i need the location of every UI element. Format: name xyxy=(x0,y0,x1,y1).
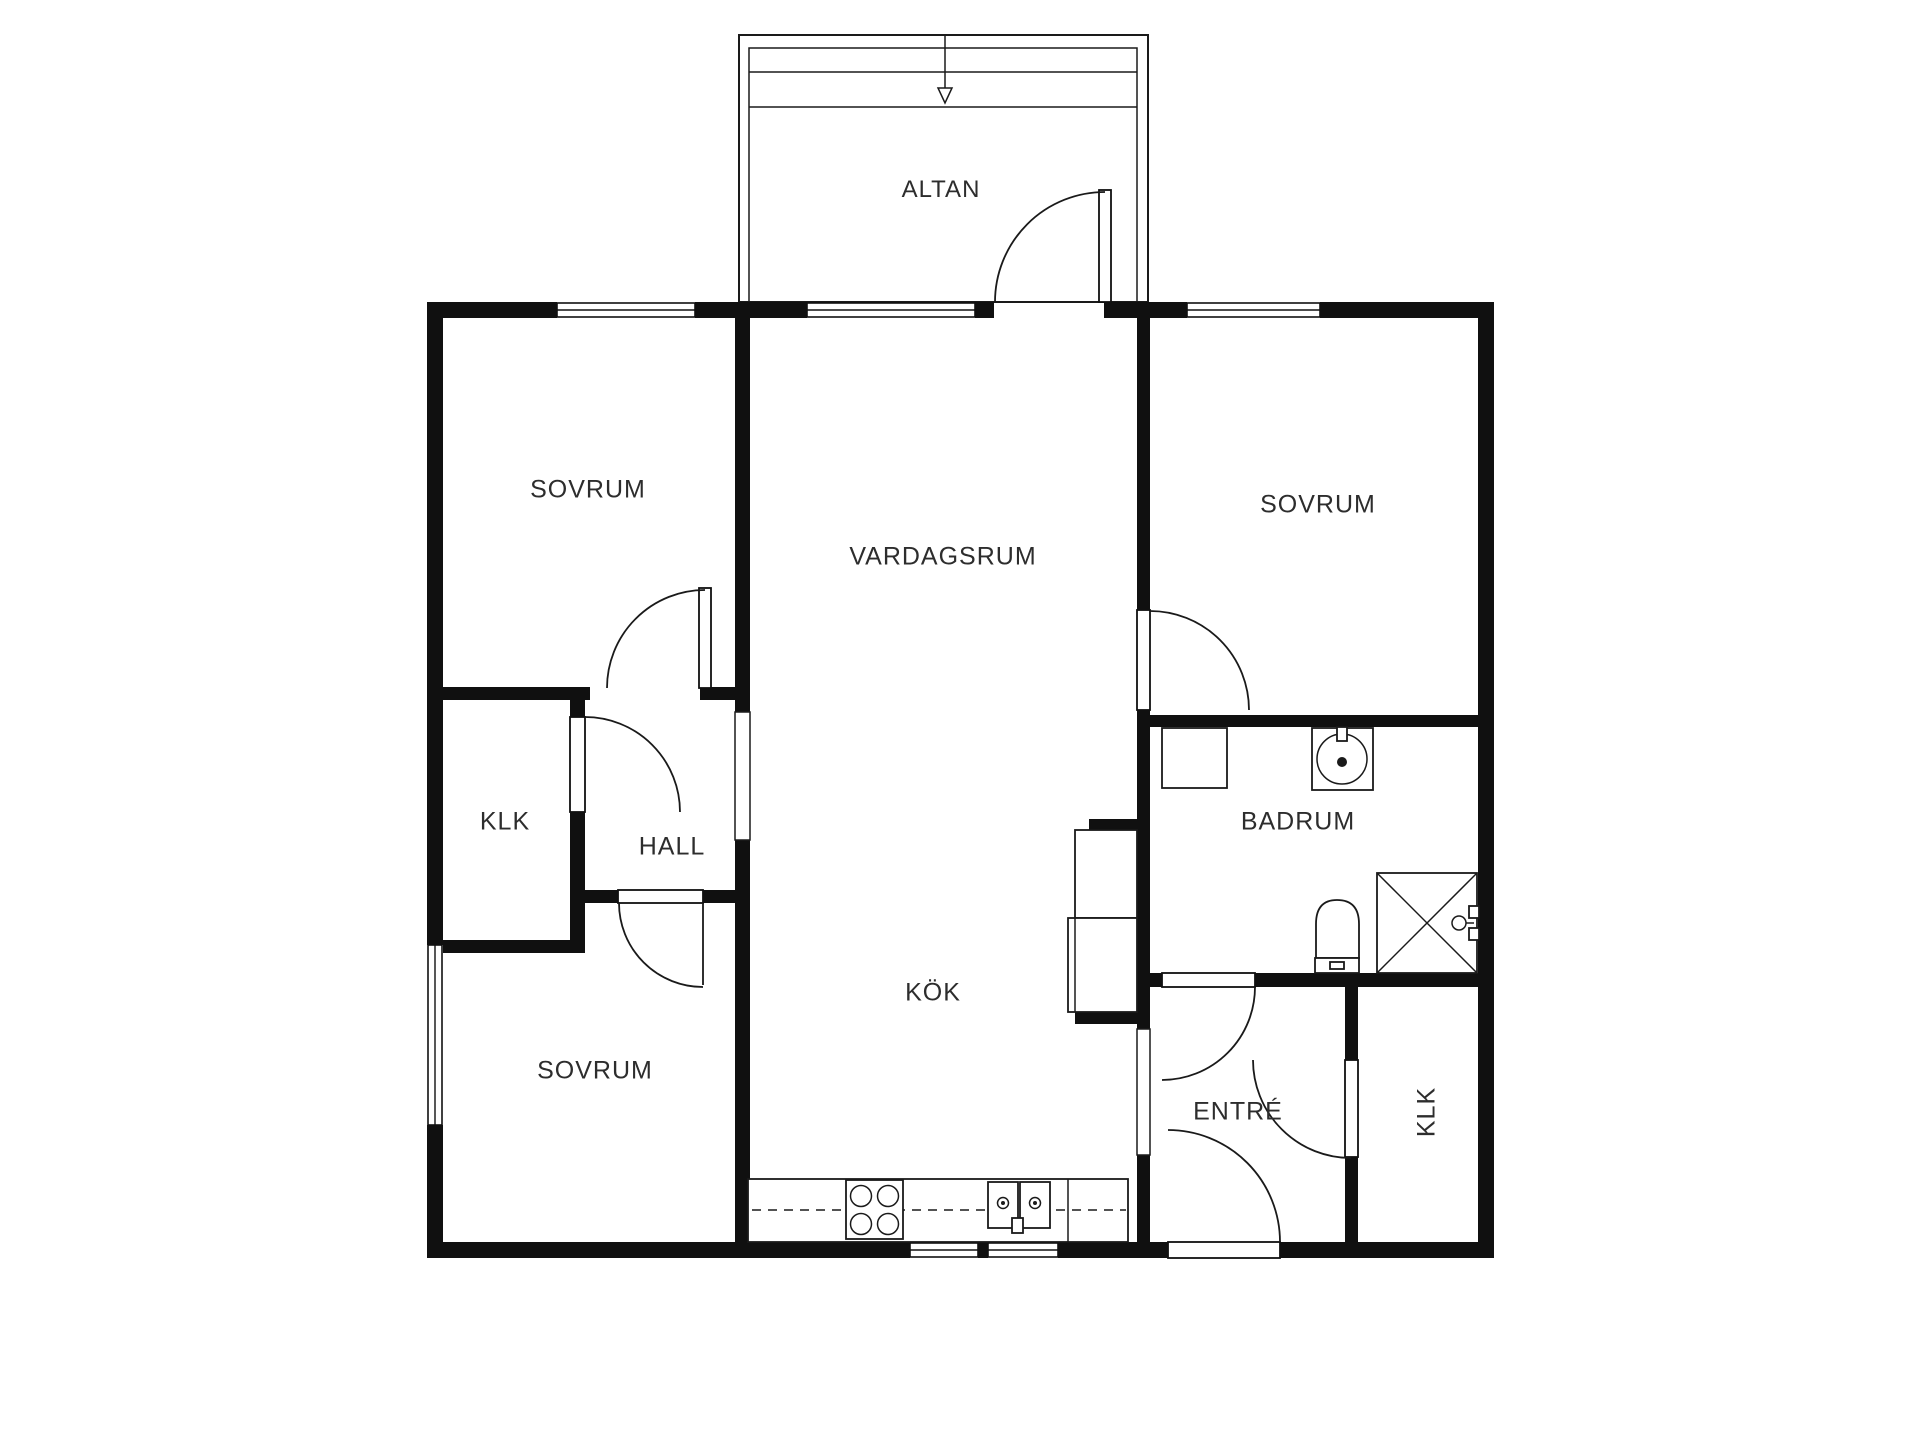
bedroom-tl-door xyxy=(607,588,711,688)
kitchen-counter xyxy=(748,1179,1128,1242)
bathroom-door xyxy=(1162,973,1255,1080)
window xyxy=(428,945,442,1125)
shower-icon xyxy=(1377,873,1477,973)
room-label-altan: ALTAN xyxy=(902,176,981,204)
window xyxy=(910,1243,978,1257)
floor-plan-drawing xyxy=(0,0,1920,1440)
washing-machine-icon xyxy=(1162,728,1227,788)
room-label-klk-left: KLK xyxy=(480,808,530,837)
toilet-icon xyxy=(1315,900,1359,973)
bathroom-sink-icon xyxy=(1312,727,1373,790)
bedroom-tr-door xyxy=(1137,610,1249,710)
floor-plan: ALTAN SOVRUM VARDAGSRUM SOVRUM KLK HALL … xyxy=(0,0,1920,1440)
entrance-door xyxy=(1168,1130,1280,1258)
room-label-sovrum-tr: SOVRUM xyxy=(1260,491,1376,520)
room-label-hall: HALL xyxy=(639,833,706,862)
room-label-sovrum-tl: SOVRUM xyxy=(530,476,646,505)
room-label-klk-br: KLK xyxy=(1413,1087,1442,1137)
room-label-entre: ENTRÉ xyxy=(1193,1098,1283,1127)
stove-icon xyxy=(846,1180,903,1239)
window xyxy=(988,1243,1058,1257)
room-label-kok: KÖK xyxy=(905,979,961,1008)
balcony-door xyxy=(995,190,1111,302)
freezer-icon xyxy=(1068,918,1137,1012)
closet-left-door xyxy=(570,717,680,812)
window xyxy=(807,303,975,317)
bedroom-bl-door xyxy=(618,890,703,987)
entrance-arrow-icon xyxy=(938,35,952,103)
window xyxy=(557,303,695,317)
kitchen-entry-opening xyxy=(1137,1029,1150,1155)
hall-livingroom-opening xyxy=(735,712,750,840)
refrigerator-icon xyxy=(1075,830,1137,918)
room-label-sovrum-bl: SOVRUM xyxy=(537,1057,653,1086)
room-label-vardagsrum: VARDAGSRUM xyxy=(849,543,1036,572)
window xyxy=(1187,303,1320,317)
altan-railing xyxy=(739,35,1148,302)
room-label-badrum: BADRUM xyxy=(1241,808,1355,837)
